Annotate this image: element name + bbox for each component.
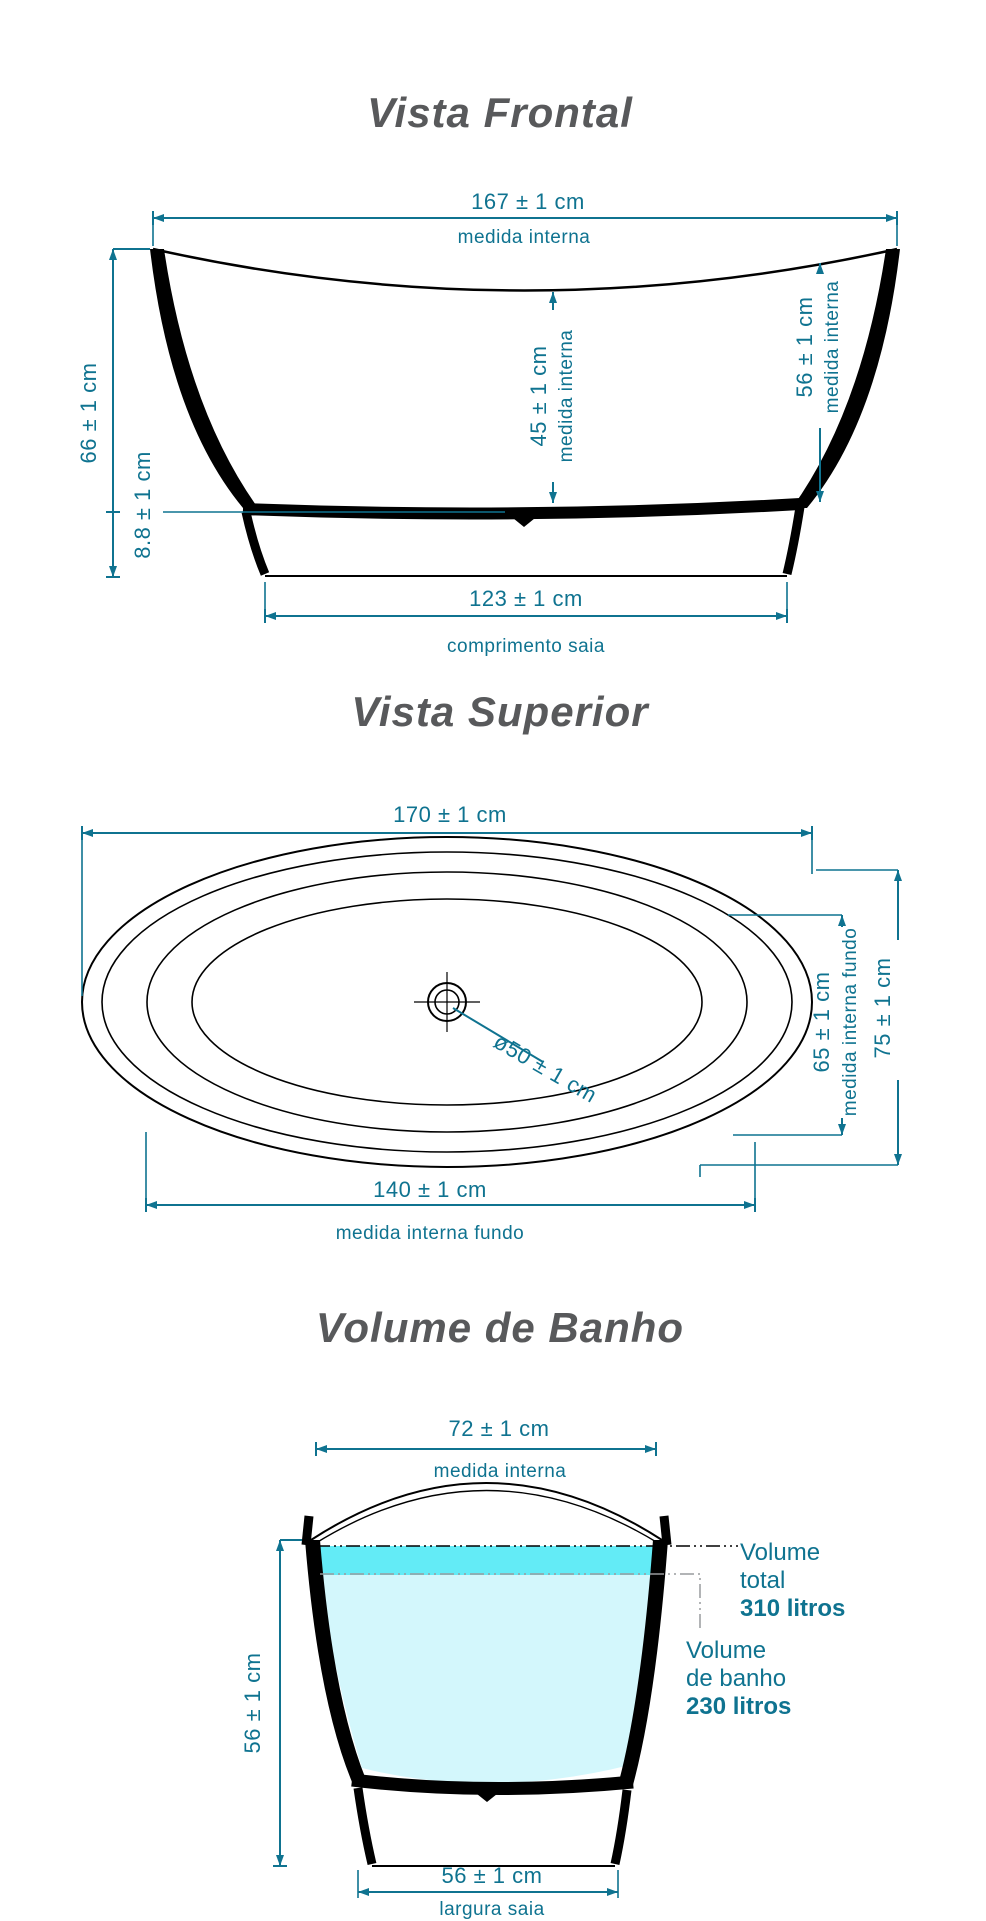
volume-dim-skirt-width-label: largura saia: [439, 1899, 544, 1920]
volume-dim-skirt-width-value: 56 ± 1 cm: [442, 1863, 543, 1888]
top-dim-floor-length-label: medida interna fundo: [336, 1223, 525, 1244]
top-dim-floor-length: 140 ± 1 cm medida interna fundo: [146, 1132, 755, 1244]
volume-skirt-left: [358, 1788, 372, 1864]
volume-view: Volume de Banho 72 ± 1 cm medida interna: [240, 1304, 845, 1920]
top-dim-floor-width: 65 ± 1 cm medida interna fundo: [728, 915, 861, 1135]
front-dim-depth-center-label: medida interna: [556, 330, 577, 463]
front-dim-depth-center: 45 ± 1 cm medida interna: [526, 292, 577, 503]
front-dim-depth-right-label: medida interna: [822, 281, 843, 414]
front-dim-skirt-length-value: 123 ± 1 cm: [469, 586, 583, 611]
top-dim-outer-width-value: 75 ± 1 cm: [870, 958, 895, 1059]
front-dim-top-width: 167 ± 1 cm medida interna: [153, 189, 897, 248]
front-dim-skirt-height: 8.8 ± 1 cm: [106, 451, 505, 559]
water-total-band: [316, 1546, 658, 1575]
top-dim-floor-width-value: 65 ± 1 cm: [809, 972, 834, 1073]
front-dim-top-width-value: 167 ± 1 cm: [471, 189, 585, 214]
volume-total-line2: total: [740, 1567, 785, 1594]
technical-drawing: Vista Frontal 167 ± 1 cm medida interna: [0, 0, 986, 1921]
front-skirt-left: [246, 512, 265, 574]
volume-total-value: 310 litros: [740, 1595, 845, 1622]
top-dim-floor-length-value: 140 ± 1 cm: [373, 1177, 487, 1202]
volume-total-annotation: Volume total 310 litros: [740, 1539, 845, 1622]
top-view: Vista Superior ø50 ± 1 cm 170 ± 1 cm: [82, 688, 898, 1244]
front-dim-total-height-value: 66 ± 1 cm: [76, 363, 101, 464]
volume-dim-inner-width: 72 ± 1 cm medida interna: [316, 1416, 656, 1482]
volume-dim-inner-width-value: 72 ± 1 cm: [449, 1416, 550, 1441]
volume-dim-skirt-width: 56 ± 1 cm largura saia: [358, 1863, 618, 1920]
top-view-title: Vista Superior: [351, 688, 650, 735]
front-dim-depth-right-value: 56 ± 1 cm: [792, 297, 817, 398]
top-dim-drain-value: ø50 ± 1 cm: [490, 1029, 602, 1108]
water-bath-area: [319, 1574, 656, 1783]
volume-dim-height: 56 ± 1 cm: [240, 1540, 302, 1866]
volume-bath-annotation: Volume de banho 230 litros: [686, 1637, 791, 1720]
front-dim-top-width-label: medida interna: [458, 227, 591, 248]
top-dim-outer-length-value: 170 ± 1 cm: [393, 802, 507, 827]
volume-view-title: Volume de Banho: [316, 1304, 684, 1351]
drain-icon: [414, 972, 480, 1032]
volume-bath-line2: de banho: [686, 1665, 786, 1692]
volume-dim-height-value: 56 ± 1 cm: [240, 1653, 265, 1754]
water-fill: [316, 1546, 658, 1783]
volume-total-line1: Volume: [740, 1539, 820, 1566]
front-dim-skirt-height-value: 8.8 ± 1 cm: [130, 451, 155, 559]
volume-bath-value: 230 litros: [686, 1693, 791, 1720]
front-view-title: Vista Frontal: [367, 89, 633, 136]
front-tub-outline: [150, 249, 900, 576]
front-dim-skirt-length-label: comprimento saia: [447, 636, 605, 657]
front-dim-depth-center-value: 45 ± 1 cm: [526, 346, 551, 447]
front-dim-skirt-length: 123 ± 1 cm comprimento saia: [265, 582, 787, 657]
volume-bath-line1: Volume: [686, 1637, 766, 1664]
top-dim-floor-width-label: medida interna fundo: [840, 928, 861, 1117]
front-view: Vista Frontal 167 ± 1 cm medida interna: [76, 89, 900, 657]
front-tub-left-wall: [150, 249, 258, 508]
top-dim-drain: ø50 ± 1 cm: [453, 1008, 601, 1108]
front-skirt-right: [787, 507, 800, 574]
bathtub-spec-sheet: Vista Frontal 167 ± 1 cm medida interna: [0, 0, 986, 1921]
volume-dim-inner-width-label: medida interna: [434, 1461, 567, 1482]
volume-skirt-right: [615, 1790, 627, 1864]
